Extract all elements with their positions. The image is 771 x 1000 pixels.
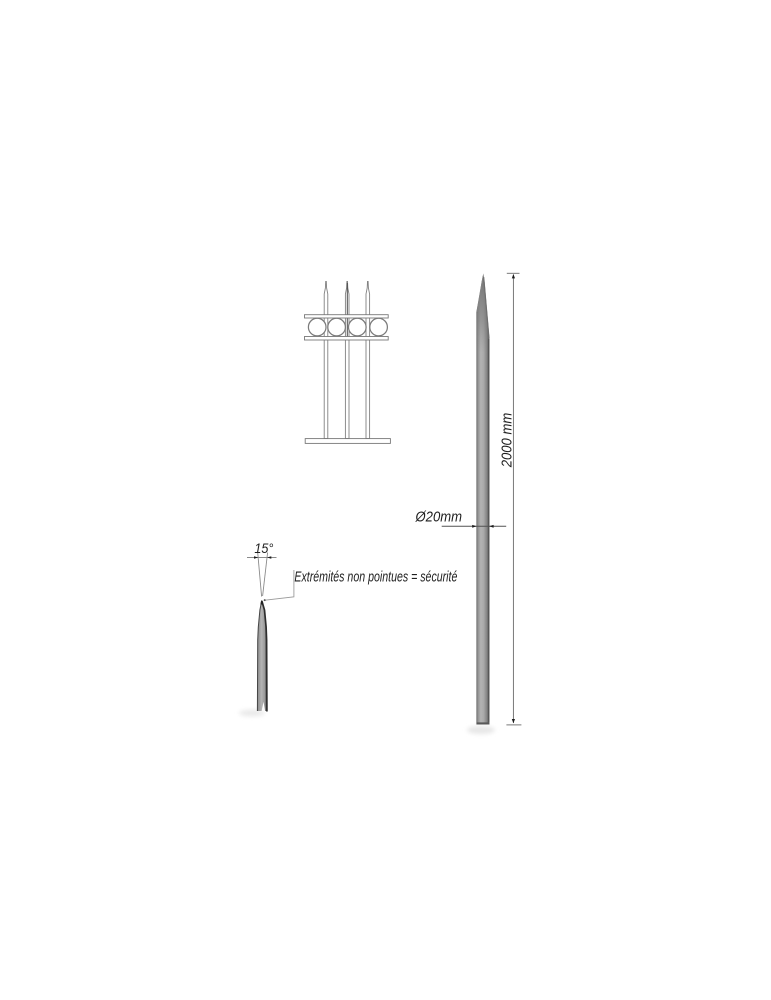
svg-text:15°: 15°	[254, 540, 273, 556]
svg-text:2000 mm: 2000 mm	[500, 413, 516, 468]
svg-text:Extrémités non pointues = sécu: Extrémités non pointues = sécurité	[294, 569, 457, 586]
svg-text:Ø20mm: Ø20mm	[415, 508, 462, 525]
